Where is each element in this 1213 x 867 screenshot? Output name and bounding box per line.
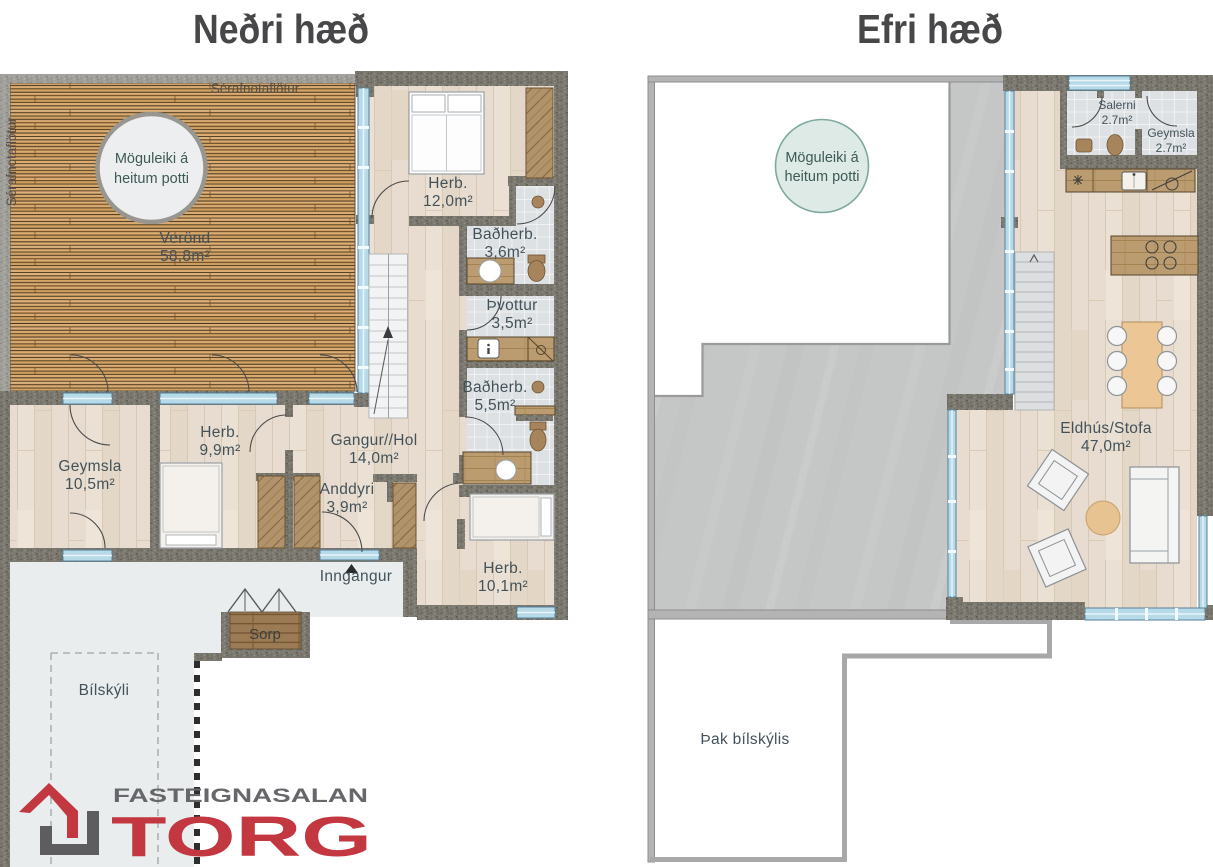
svg-text:3,9m²: 3,9m² [326,499,367,516]
svg-text:2.7m²: 2.7m² [1102,113,1133,127]
svg-text:Sérafnotaflötur: Sérafnotaflötur [4,117,19,206]
svg-text:14,0m²: 14,0m² [349,450,399,467]
svg-text:Salerni: Salerni [1098,98,1135,112]
svg-text:Sorp: Sorp [249,626,281,643]
svg-text:58,8m²: 58,8m² [160,248,210,265]
svg-text:9,9m²: 9,9m² [199,442,240,459]
svg-text:Geymsla: Geymsla [1147,126,1195,140]
svg-text:47,0m²: 47,0m² [1081,438,1131,455]
svg-text:10,5m²: 10,5m² [65,476,115,493]
svg-text:Baðherb.: Baðherb. [462,379,527,396]
svg-text:Baðherb.: Baðherb. [472,226,537,243]
svg-text:3,5m²: 3,5m² [491,315,532,332]
svg-text:Inngangur: Inngangur [320,568,393,585]
svg-text:Bílskýli: Bílskýli [79,682,130,699]
svg-text:Efri hæð: Efri hæð [857,6,1003,52]
svg-text:Neðri hæð: Neðri hæð [193,6,369,52]
svg-text:FASTEIGNASALAN: FASTEIGNASALAN [113,786,368,807]
svg-text:Geymsla: Geymsla [58,458,121,475]
svg-text:Þvottur: Þvottur [486,297,537,314]
svg-text:heitum potti: heitum potti [785,169,860,185]
svg-text:12,0m²: 12,0m² [423,193,473,210]
svg-text:2.7m²: 2.7m² [1156,141,1187,155]
svg-text:Sérafnotaflötur: Sérafnotaflötur [211,81,300,96]
svg-text:Herb.: Herb. [428,175,467,192]
svg-text:Herb.: Herb. [483,560,522,577]
svg-text:Eldhús/Stofa: Eldhús/Stofa [1060,420,1152,437]
svg-text:Þak bílskýlis: Þak bílskýlis [700,731,789,748]
svg-text:Verönd: Verönd [160,230,211,247]
svg-text:Anddyri: Anddyri [320,481,375,498]
svg-text:TORG: TORG [111,805,372,867]
svg-text:10,1m²: 10,1m² [478,578,528,595]
svg-text:heitum potti: heitum potti [114,171,189,187]
svg-text:Gangur//Hol: Gangur//Hol [331,432,418,449]
svg-text:Herb.: Herb. [200,424,239,441]
svg-text:5,5m²: 5,5m² [474,397,515,414]
svg-text:Möguleiki á: Möguleiki á [785,150,859,166]
svg-text:Möguleiki á: Möguleiki á [115,151,189,167]
svg-text:3,6m²: 3,6m² [484,244,525,261]
